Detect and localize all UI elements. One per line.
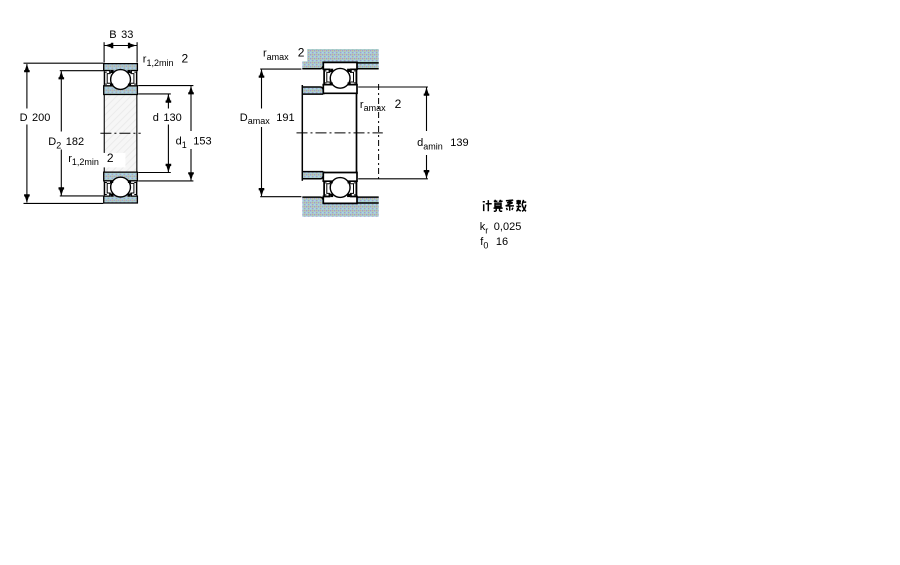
svg-text:B33: B33 <box>109 29 133 41</box>
svg-text:d1153: d1153 <box>176 136 212 150</box>
svg-text:d130: d130 <box>153 112 182 124</box>
svg-text:f016: f016 <box>480 236 508 251</box>
svg-text:Damax191: Damax191 <box>240 112 295 126</box>
svg-text:D200: D200 <box>20 112 51 124</box>
svg-text:ramax2: ramax2 <box>360 97 402 113</box>
svg-text:damin139: damin139 <box>417 137 469 151</box>
svg-text:ramax2: ramax2 <box>263 46 305 62</box>
svg-text:D2182: D2182 <box>48 136 84 150</box>
svg-text:r1,2min2: r1,2min2 <box>143 52 189 68</box>
svg-text:kr0,025: kr0,025 <box>480 221 522 236</box>
svg-text:r1,2min2: r1,2min2 <box>68 151 114 167</box>
